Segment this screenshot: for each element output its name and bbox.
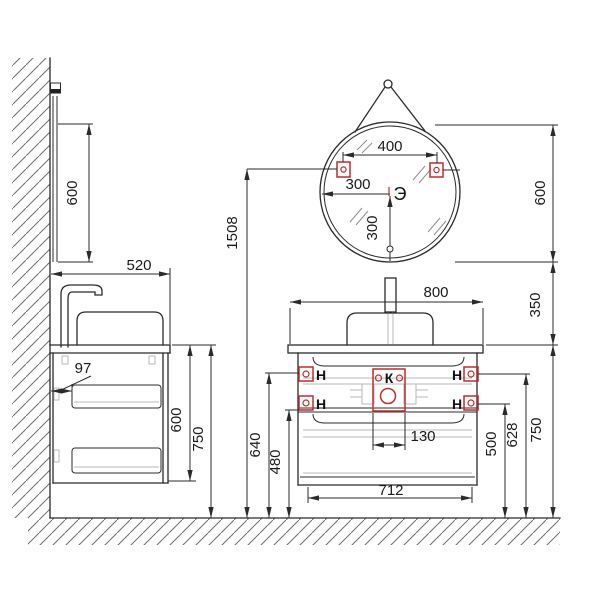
dim-mirror-mount-span: 400 [343,138,437,163]
drawer-side-upper [72,385,161,408]
hanger-label-lower-left: H [316,396,326,412]
hanger-label-lower-right: H [452,396,462,412]
mirror-mount-left [337,162,350,177]
drawer-handle-upper [313,357,464,366]
dim-bracket-left-lower: 480 [267,410,299,518]
basin-side [77,312,163,345]
dim-mirror-center-down: 300 [364,196,393,261]
dim-side-total-height: 750 [190,345,211,518]
comm-box-label: К [385,370,394,386]
drawer-hardware [303,378,472,473]
dim-label-mirror-mount-span: 400 [377,138,402,155]
dim-label-inner-width: 712 [378,482,403,499]
drawing-canvas: 600 520 97 [0,0,600,600]
dim-label-bracket-right-lower: 500 [483,431,500,456]
cable-exit-point [387,246,393,252]
dim-label-cabinet-width: 800 [423,284,448,301]
drain-hole [381,389,396,404]
countertop-front [288,345,483,353]
side-view-mirror [51,83,61,262]
dim-right-column: 600 350 750 [435,125,558,518]
hanger-bracket-upper-left [299,367,313,381]
dim-side-cabinet-height: 600 [168,345,216,481]
dim-label-comm-box-width: 130 [410,428,435,445]
dim-label-side-cabinet-height: 600 [168,407,185,432]
dim-label-counter-height: 750 [528,417,545,442]
dim-label-side-depth: 520 [126,257,151,274]
dim-label-mirror-center-down: 300 [364,215,381,240]
dim-label-mirror-counter-gap: 350 [527,292,544,317]
dim-label-mirror-center-left: 300 [345,176,370,193]
basin-front [347,313,433,345]
dim-label-bracket-left-lower: 480 [267,449,284,474]
front-view-vanity: H H H H К [288,278,483,485]
dim-label-mirror-diameter: 600 [532,180,549,205]
hanger-label-upper-right: H [452,367,462,383]
hanger-label-upper-left: H [316,367,326,383]
dim-label-bracket-left-upper: 640 [247,432,264,457]
dim-label-mirror-height-above-floor: 1508 [224,216,241,249]
drawer-handle-lower [313,414,464,423]
dim-label-bracket-right-upper: 628 [504,422,521,447]
faucet-front [385,278,396,312]
floor-hatch [28,518,560,545]
technical-drawing: 600 520 97 [0,0,600,600]
wall-hatch [12,58,50,518]
faucet-side [61,285,102,347]
mirror-mount-right [430,163,443,177]
dim-bracket-left-upper: 640 [247,373,299,518]
floor-section [28,518,560,545]
wall-section [12,58,50,518]
comm-box: К [373,369,405,411]
dim-comm-box-width: 130 [373,413,436,450]
side-view-vanity [50,285,170,483]
mirror-wall-bracket-pad [51,89,61,94]
drawer-side-lower [72,448,161,473]
dim-side-mirror-height: 600 [58,124,93,262]
dim-label-side-mirror-height: 600 [64,180,81,205]
dim-label-side-total-height: 750 [190,426,207,451]
dim-side-wall-offset: 97 [51,360,91,398]
dim-mirror-center-left: 300 [322,176,390,196]
dim-label-side-wall-offset: 97 [75,360,92,377]
hanger-bracket-upper-right [464,367,478,381]
dim-side-depth: 520 [51,257,170,344]
dim-cabinet-width: 800 [290,284,483,344]
dim-bracket-right-lower: 500 [478,404,510,518]
electric-point-label: Э [394,184,407,204]
